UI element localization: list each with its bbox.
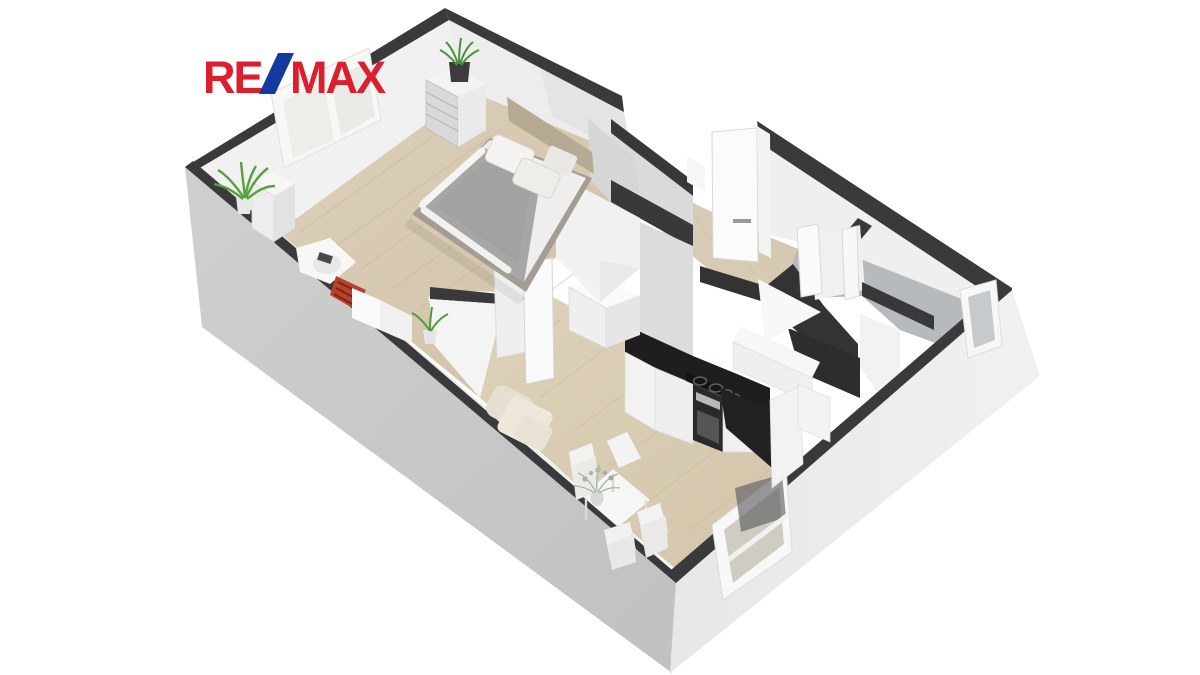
svg-text:RE: RE [203, 52, 262, 103]
svg-text:MAX: MAX [290, 52, 386, 103]
